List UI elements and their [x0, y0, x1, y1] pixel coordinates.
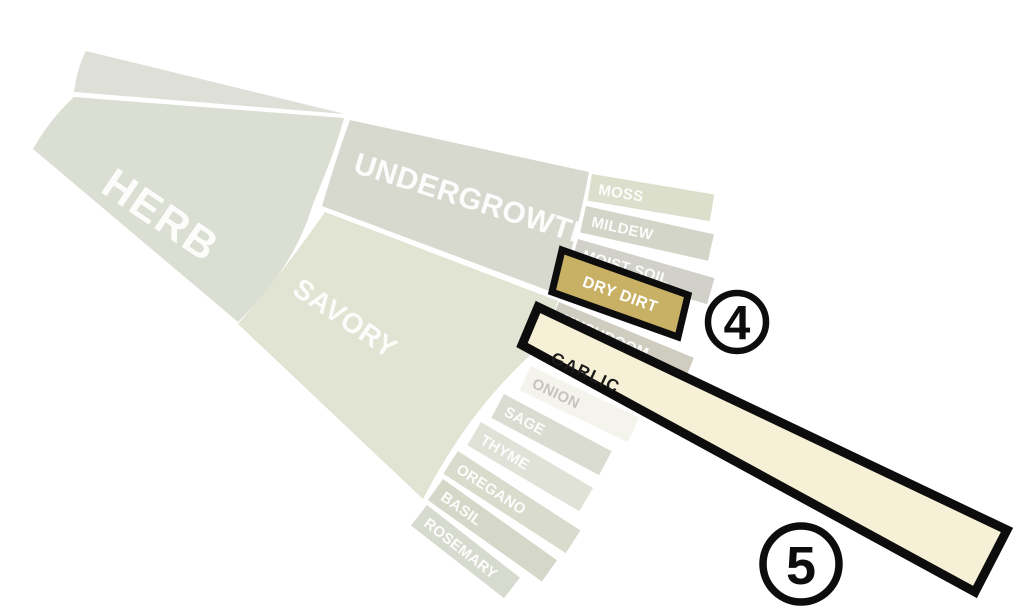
callout-5: 5 [763, 526, 839, 602]
flavor-wheel-svg: HERBUNDERGROWTHSAVORYMOSSMILDEWMOIST SOI… [0, 0, 1024, 613]
callout-number: 5 [786, 536, 816, 596]
wheel-regions [33, 51, 589, 499]
callout-4: 4 [708, 293, 766, 351]
flavor-wheel-diagram: HERBUNDERGROWTHSAVORYMOSSMILDEWMOIST SOI… [0, 0, 1024, 613]
callout-number: 4 [724, 297, 751, 350]
